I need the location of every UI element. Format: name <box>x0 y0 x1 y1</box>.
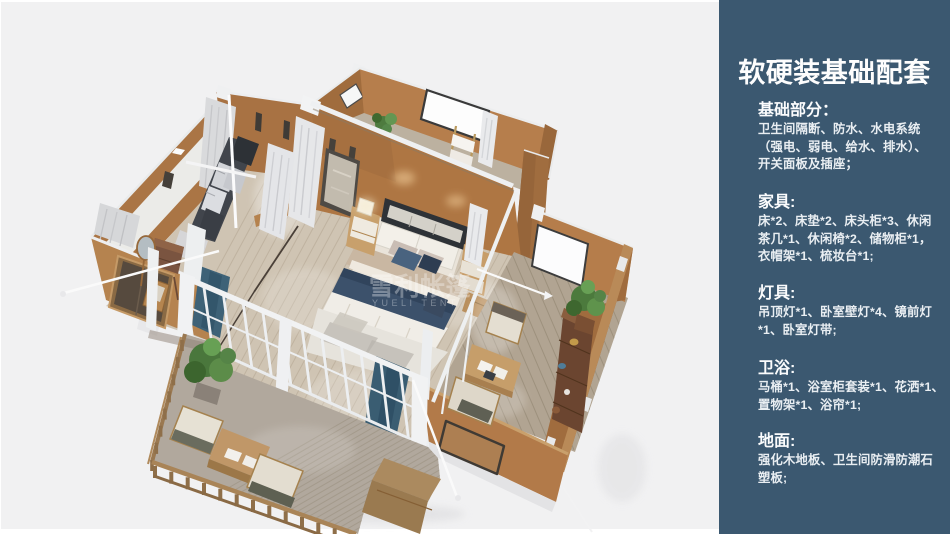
svg-text:YUELI TENT: YUELI TENT <box>372 298 459 308</box>
svg-text:雪利帐篷: 雪利帐篷 <box>369 272 472 301</box>
